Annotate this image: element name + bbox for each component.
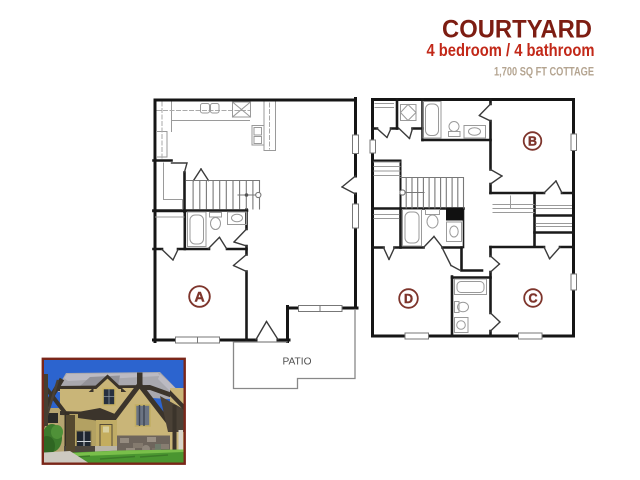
svg-text:C: C bbox=[528, 292, 537, 306]
svg-text:D: D bbox=[404, 292, 413, 306]
svg-text:4 bedroom / 4 bathroom: 4 bedroom / 4 bathroom bbox=[427, 40, 595, 60]
svg-text:A: A bbox=[194, 289, 204, 305]
svg-text:B: B bbox=[528, 135, 537, 149]
svg-text:PATIO: PATIO bbox=[283, 356, 312, 368]
svg-text:1,700 SQ FT COTTAGE: 1,700 SQ FT COTTAGE bbox=[494, 67, 594, 79]
